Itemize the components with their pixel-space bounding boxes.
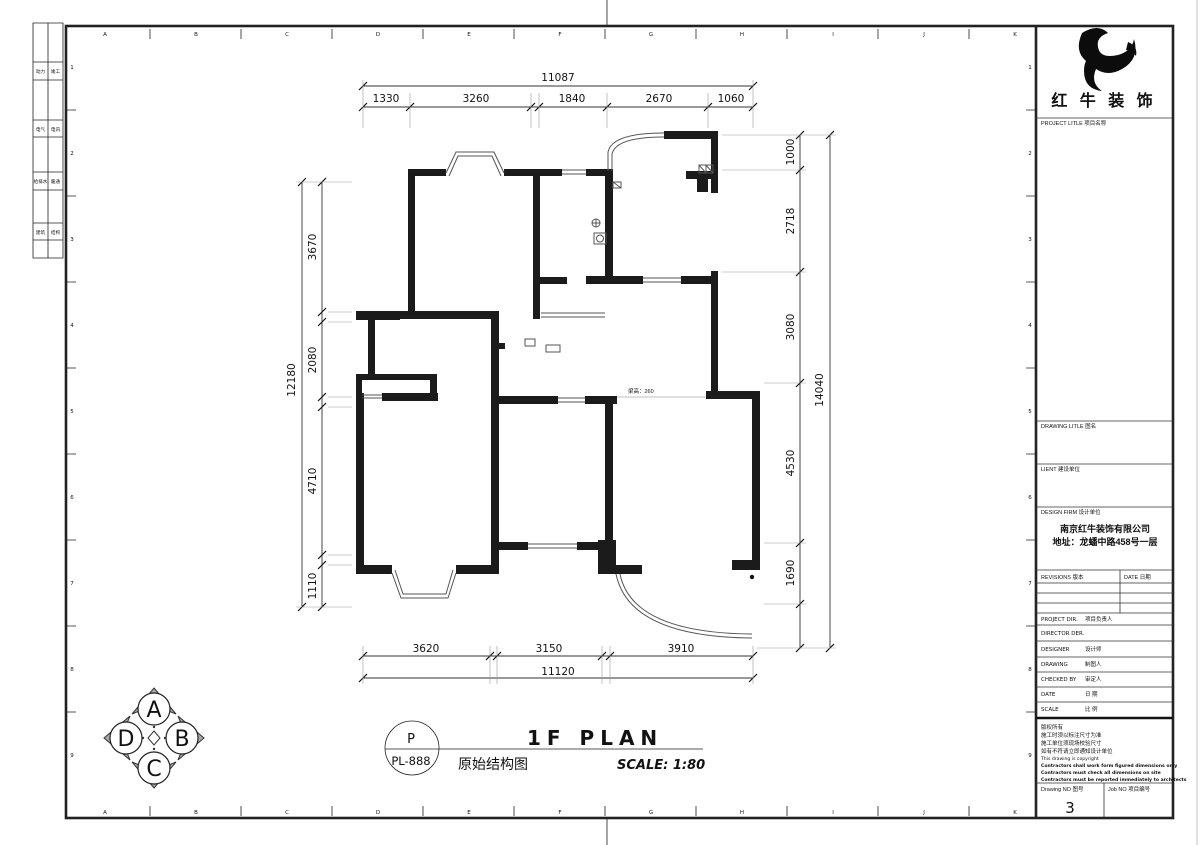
grid-letters-top: A B C D E F G H I J K (103, 29, 1017, 39)
grid-number: 1 (1028, 65, 1032, 71)
wall (356, 374, 437, 380)
door-opening (541, 313, 605, 317)
dim-label: 1110 (307, 573, 319, 600)
drawing-title-label: DRAWING LITLE 图名 (1041, 422, 1096, 430)
grid-number: 9 (70, 753, 74, 759)
strip-label: 暖通 (51, 178, 61, 185)
field-en: DESIGNER (1041, 647, 1070, 653)
compass-label-d: D (118, 727, 135, 752)
dim-label: 1330 (373, 93, 400, 105)
ceiling-lamp-icon (592, 219, 600, 227)
field-zh: 制图人 (1085, 660, 1102, 668)
copyright-line: Contractors must be reported immediately… (1041, 777, 1187, 783)
grid-number: 8 (1028, 667, 1032, 673)
grid-letter: E (467, 32, 471, 38)
beam-note: 梁高：260 (628, 387, 654, 395)
wall (605, 169, 613, 284)
grid-numbers-left: 1 2 3 4 5 6 7 8 9 (66, 65, 76, 759)
strip-label: 给排水 (34, 178, 48, 185)
discipline-strip: 动力 竣工 电气 电讯 给排水 暖通 建筑 结构 (33, 23, 63, 258)
dim-label: 2080 (307, 347, 319, 374)
grid-letter: D (376, 810, 380, 816)
dim-label: 4710 (307, 468, 319, 495)
field-en: DIRECTOR DER. (1041, 631, 1085, 637)
copyright-line: Contractors must check all dimensions on… (1041, 770, 1161, 776)
grid-number: 6 (1028, 495, 1032, 501)
revisions-label: REVISIONS 版本 (1041, 573, 1084, 581)
rev-date-label: DATE 日期 (1124, 574, 1151, 581)
grid-letter: J (922, 810, 925, 816)
wall (356, 393, 364, 574)
grid-letter: F (558, 810, 561, 816)
dim-label: 1840 (559, 93, 586, 105)
dim-label: 11120 (541, 666, 574, 678)
wall (408, 169, 446, 176)
wall (540, 169, 562, 176)
wall (732, 560, 760, 570)
wall (398, 311, 499, 319)
scale-label: SCALE: 1:80 (617, 758, 705, 773)
sheet-frame: 动力 竣工 电气 电讯 给排水 暖通 建筑 结构 A B C D E F G H… (33, 0, 1197, 845)
grid-letter: I (832, 810, 834, 816)
grid-number: 2 (70, 151, 74, 157)
wall (605, 404, 613, 544)
grid-letter: B (194, 810, 198, 816)
symbols (525, 165, 754, 579)
column (546, 345, 560, 352)
grid-letter: C (285, 32, 289, 38)
dim-label: 3670 (307, 234, 319, 261)
door-opening (558, 398, 585, 402)
tag-code: PL-888 (391, 754, 430, 768)
firm-name: 南京红牛装饰有限公司 (1060, 523, 1150, 534)
field-en: DRAWING (1041, 662, 1068, 668)
strip-label: 结构 (51, 229, 61, 236)
grid-number: 7 (1028, 581, 1032, 587)
dim-label: 1000 (785, 139, 797, 166)
field-zh: 日 期 (1085, 691, 1098, 698)
wall (493, 343, 505, 349)
design-firm-label: DESIGN FIRM 设计单位 (1041, 508, 1101, 516)
dim-label: 1060 (718, 93, 745, 105)
wall (356, 565, 392, 574)
dim-top: 11087 1330 3260 1840 2670 1060 (359, 72, 757, 128)
field-zh: 比 例 (1085, 705, 1098, 713)
compass-dot (164, 737, 166, 739)
grid-number: 5 (70, 409, 74, 415)
switch-box-icon (594, 233, 606, 244)
grid-number: 4 (1028, 323, 1032, 329)
firm-address: 地址：龙蟠中路458号一层 (1052, 536, 1157, 547)
grid-number: 2 (1028, 151, 1032, 157)
dim-label: 3260 (463, 93, 490, 105)
wall (697, 179, 708, 192)
compass: A B C D (104, 688, 204, 788)
dim-label: 14040 (814, 373, 826, 406)
wall (368, 320, 375, 377)
window (562, 170, 586, 174)
compass-center-icon (148, 731, 160, 745)
grid-letter: J (922, 32, 925, 38)
grid-letter: K (1013, 32, 1017, 38)
dim-label: 3620 (413, 643, 440, 655)
wall (586, 276, 643, 284)
grid-number: 8 (70, 667, 74, 673)
grid-letter: C (285, 810, 289, 816)
compass-label-b: B (174, 727, 189, 752)
column (525, 339, 535, 346)
grid-letter: K (1013, 810, 1017, 816)
strip-label: 电气 (36, 126, 46, 132)
drawing-no-value: 3 (1065, 799, 1075, 817)
field-en: SCALE (1041, 707, 1059, 713)
wall (533, 169, 540, 319)
wall (711, 271, 718, 398)
grid-letter: F (558, 32, 561, 38)
copyright-line: 版权所有 (1041, 723, 1064, 731)
field-zh: 项目负责人 (1085, 615, 1113, 623)
dim-label: 11087 (541, 72, 574, 84)
field-en: DATE (1041, 692, 1056, 698)
compass-label-c: C (146, 757, 161, 782)
dim-label: 1690 (785, 560, 797, 587)
dim-label: 3150 (536, 643, 563, 655)
grid-letter: D (376, 32, 380, 38)
dim-label: 2718 (785, 208, 797, 235)
grid-letter: E (467, 810, 471, 816)
dim-left: 12180 3670 2080 4710 1110 (286, 178, 352, 611)
wall (585, 396, 617, 404)
compass-dot (153, 726, 155, 728)
field-zh: 审定人 (1085, 675, 1102, 683)
drawing-name: 原始结构图 (458, 756, 528, 772)
grid-number: 9 (1028, 753, 1032, 759)
grid-letter: G (649, 810, 653, 816)
strip-label: 动力 (36, 68, 46, 75)
wall (752, 391, 760, 567)
grid-letter: A (103, 810, 107, 816)
dim-label: 3910 (668, 643, 695, 655)
grid-letter: B (194, 32, 198, 38)
compass-dot (153, 748, 155, 750)
copyright-line: Contractors shall work form figured dime… (1041, 763, 1177, 769)
wall (499, 396, 558, 404)
wall (382, 393, 438, 401)
project-title-label: PROJECT LITLE 项目名称 (1041, 119, 1107, 127)
grid-number: 3 (1028, 237, 1032, 243)
drawing-sheet: 动力 竣工 电气 电讯 给排水 暖通 建筑 结构 A B C D E F G H… (0, 0, 1200, 845)
wall (499, 542, 528, 550)
grid-number: 7 (70, 581, 74, 587)
compass-dot (142, 737, 144, 739)
grid-number: 1 (70, 65, 74, 71)
client-label: LIENT 建设单位 (1041, 465, 1081, 473)
dim-bottom: 3620 3150 3910 11120 (359, 643, 757, 684)
title-strip: P PL-888 1F PLAN 原始结构图 SCALE: 1:80 (385, 721, 705, 775)
strip-label: 电讯 (51, 126, 61, 133)
grid-letter: H (740, 32, 744, 38)
plan-title: 1F PLAN (527, 726, 663, 750)
curved-balcony-inner (620, 574, 752, 634)
grid-number: 4 (70, 323, 74, 329)
bay-window-bottom-inner (395, 570, 453, 594)
wall (356, 311, 400, 320)
tag-letter: P (407, 732, 415, 747)
door-opening (643, 278, 681, 282)
dim-label: 2670 (646, 93, 673, 105)
copyright-line: This drawing is copyright (1040, 756, 1099, 762)
curved-balcony (616, 574, 752, 638)
grid-letter: H (740, 810, 744, 816)
brand-name: 红 牛 装 饰 (1051, 91, 1156, 110)
grid-letters-bottom: A B C D E F G H I J K (103, 806, 1017, 816)
grid-number: 3 (70, 237, 74, 243)
wall (491, 319, 499, 574)
compass-label-a: A (146, 698, 161, 723)
window (528, 544, 577, 548)
windows-and-arcs (362, 133, 752, 638)
copyright-line: 如有不符请立即通知设计单位 (1041, 747, 1113, 755)
wall (540, 277, 567, 284)
copyright-note: 版权所有 施工时须以标注尺寸为准 施工单位须现场校验尺寸 如有不符请立即通知设计… (1040, 723, 1187, 783)
job-no-label: Job NO 项目编号 (1108, 785, 1151, 793)
grid-number: 5 (1028, 409, 1032, 415)
copyright-line: 施工时须以标注尺寸为准 (1041, 731, 1102, 739)
small-box-icon (613, 182, 621, 188)
wall (664, 131, 718, 139)
grid-numbers-right: 1 2 3 4 5 6 7 8 9 (1026, 65, 1036, 759)
dim-label: 12180 (286, 363, 298, 396)
floor-plan: 梁高：260 (356, 131, 760, 638)
strip-label: 建筑 (36, 229, 46, 236)
wall (598, 565, 642, 574)
wall (711, 131, 718, 193)
field-en: CHECKED BY (1041, 677, 1077, 683)
bay-window-top-inner (449, 156, 501, 176)
brand-logo-icon (1079, 28, 1137, 91)
grid-letter: A (103, 32, 107, 38)
door-pivot (750, 575, 754, 579)
title-block: 红 牛 装 饰 PROJECT LITLE 项目名称 DRAWING LITLE… (1036, 28, 1187, 818)
dim-label: 3080 (785, 314, 797, 341)
wall (706, 391, 760, 399)
curved-window-top-inner (612, 137, 664, 171)
window (362, 395, 382, 398)
drawing-no-label: Drawing NO 图号 (1041, 785, 1084, 793)
field-en: PROJECT DIR. (1041, 617, 1078, 623)
grid-number: 6 (70, 495, 74, 501)
wall (456, 565, 491, 574)
strip-label: 竣工 (51, 68, 61, 75)
wall (408, 169, 415, 316)
grid-letter: I (832, 32, 834, 38)
copyright-line: 施工单位须现场校验尺寸 (1041, 739, 1102, 747)
grid-letter: G (649, 32, 653, 38)
field-zh: 设计师 (1085, 645, 1102, 653)
dim-label: 4530 (785, 450, 797, 477)
